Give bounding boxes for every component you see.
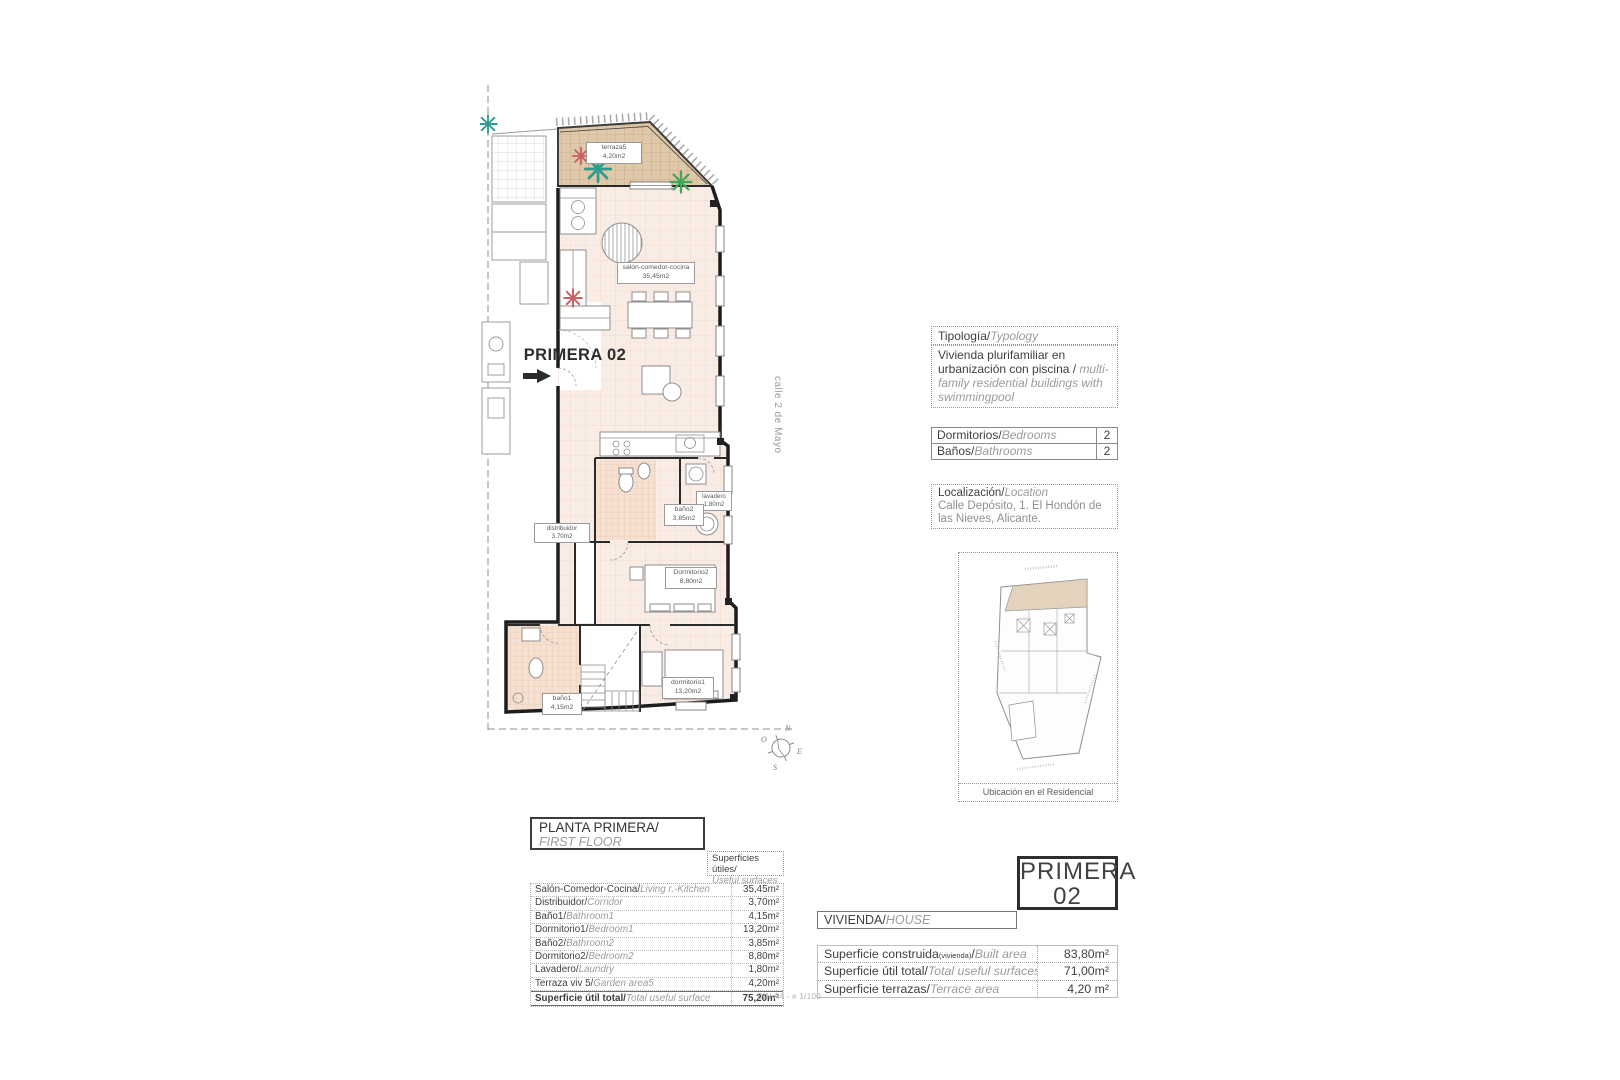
floor-title-es: PLANTA PRIMERA/: [539, 820, 696, 835]
table-row: Terraza viv 5/Garden area5 4,20m²: [531, 978, 783, 991]
street-label: calle 2 de Mayo: [772, 376, 783, 476]
total-row: Superficie útil total/Total useful surfa…: [531, 991, 783, 1006]
table-row: Superficie construida(vivienda)/Built ar…: [818, 946, 1117, 963]
entrance-arrow-icon: [522, 368, 552, 384]
compass-s: S: [773, 763, 777, 772]
house-label-bar: VIVIENDA/HOUSE: [817, 911, 1017, 929]
table-row: Baño2/Bathroom2 3,85m²: [531, 938, 783, 951]
compass-n: N: [784, 724, 791, 733]
neighbour-structures: [482, 129, 558, 454]
sheet-scale-note: DIN A4 - e 1/100: [757, 992, 821, 1001]
table-row: Dormitorio1/Bedroom1 13,20m²: [531, 924, 783, 937]
unit-highlight: [1005, 579, 1087, 611]
floor-title-en: FIRST FLOOR: [539, 835, 696, 849]
compass-e: E: [796, 747, 802, 756]
rooms-count-table: Dormitorios/Bedrooms 2 Baños/Bathrooms 2: [931, 427, 1118, 460]
toilet: [619, 472, 633, 492]
compass-o: O: [761, 735, 767, 744]
bathrooms-count: 2: [1096, 444, 1117, 459]
room-label-salon: salón-comedor-cocina35,45m2: [617, 262, 695, 284]
table-row: Superficie terrazas/Terrace area 4,20 m²: [818, 981, 1117, 997]
useful-surfaces-table: Salón-Comedor-Cocina/Living r.-Kitchen 3…: [530, 883, 784, 1007]
rug: [602, 223, 642, 263]
table-row: Baños/Bathrooms 2: [932, 443, 1117, 459]
table-row: Lavadero/Laundry 1,80m²: [531, 964, 783, 977]
dining-table: [628, 302, 692, 328]
unit-plan-title: PRIMERA 02: [510, 346, 640, 365]
location-box: Localización/Location Calle Depósito, 1.…: [931, 484, 1118, 529]
plant-icon: [564, 289, 582, 307]
floor-plan: terraza54,20m2 salón-comedor-cocina35,45…: [480, 80, 800, 780]
pool: [1009, 701, 1036, 741]
useful-surfaces-box: Superficies útiles/ Useful surfaces: [707, 851, 784, 876]
table-row: Baño1/Bathroom1 4,15m²: [531, 911, 783, 924]
unit-surfaces-table: Superficie construida(vivienda)/Built ar…: [817, 945, 1118, 998]
room-label-dormitorio2: Dormitorio28,80m2: [665, 567, 717, 589]
unit-name-box: PRIMERA 02: [1017, 856, 1118, 910]
table-row: Dormitorio2/Bedroom2 8,80m²: [531, 951, 783, 964]
room-label-terraza5: terraza54,20m2: [586, 142, 642, 164]
typology-body: Vivienda plurifamiliar en urbanización c…: [931, 345, 1118, 408]
room-label-bano1: baño14,15m2: [542, 693, 582, 715]
site-plan-caption: Ubicación en el Residencial: [959, 783, 1117, 801]
location-address: Calle Depósito, 1. El Hondón de las Niev…: [938, 500, 1111, 526]
room-label-bano2: baño23,85m2: [664, 504, 704, 526]
table-row: Salón-Comedor-Cocina/Living r.-Kitchen 3…: [531, 884, 783, 897]
toilet: [529, 658, 543, 678]
floor-title-box: PLANTA PRIMERA/ FIRST FLOOR: [530, 817, 705, 850]
table-row: Distribuidor/Corridor 3,70m²: [531, 897, 783, 910]
plan-sheet: terraza54,20m2 salón-comedor-cocina35,45…: [0, 0, 1620, 1080]
compass-icon: N E S O: [758, 722, 806, 772]
floor-plan-drawing: [480, 80, 800, 780]
plant-icon: [480, 115, 497, 133]
table-row: Dormitorios/Bedrooms 2: [932, 428, 1117, 443]
typology-header: Tipología/Typology: [931, 326, 1118, 345]
plant-icon: [671, 172, 692, 193]
room-label-dormitorio1: dormitorio113,20m2: [662, 677, 714, 699]
room-label-distribuidor: distribuidor3,70m2: [534, 523, 590, 543]
table-row: Superficie útil total/Total useful surfa…: [818, 963, 1117, 980]
bedrooms-count: 2: [1096, 428, 1117, 443]
site-plan-drawing: [959, 553, 1117, 781]
site-plan-box: Ubicación en el Residencial: [958, 552, 1118, 802]
